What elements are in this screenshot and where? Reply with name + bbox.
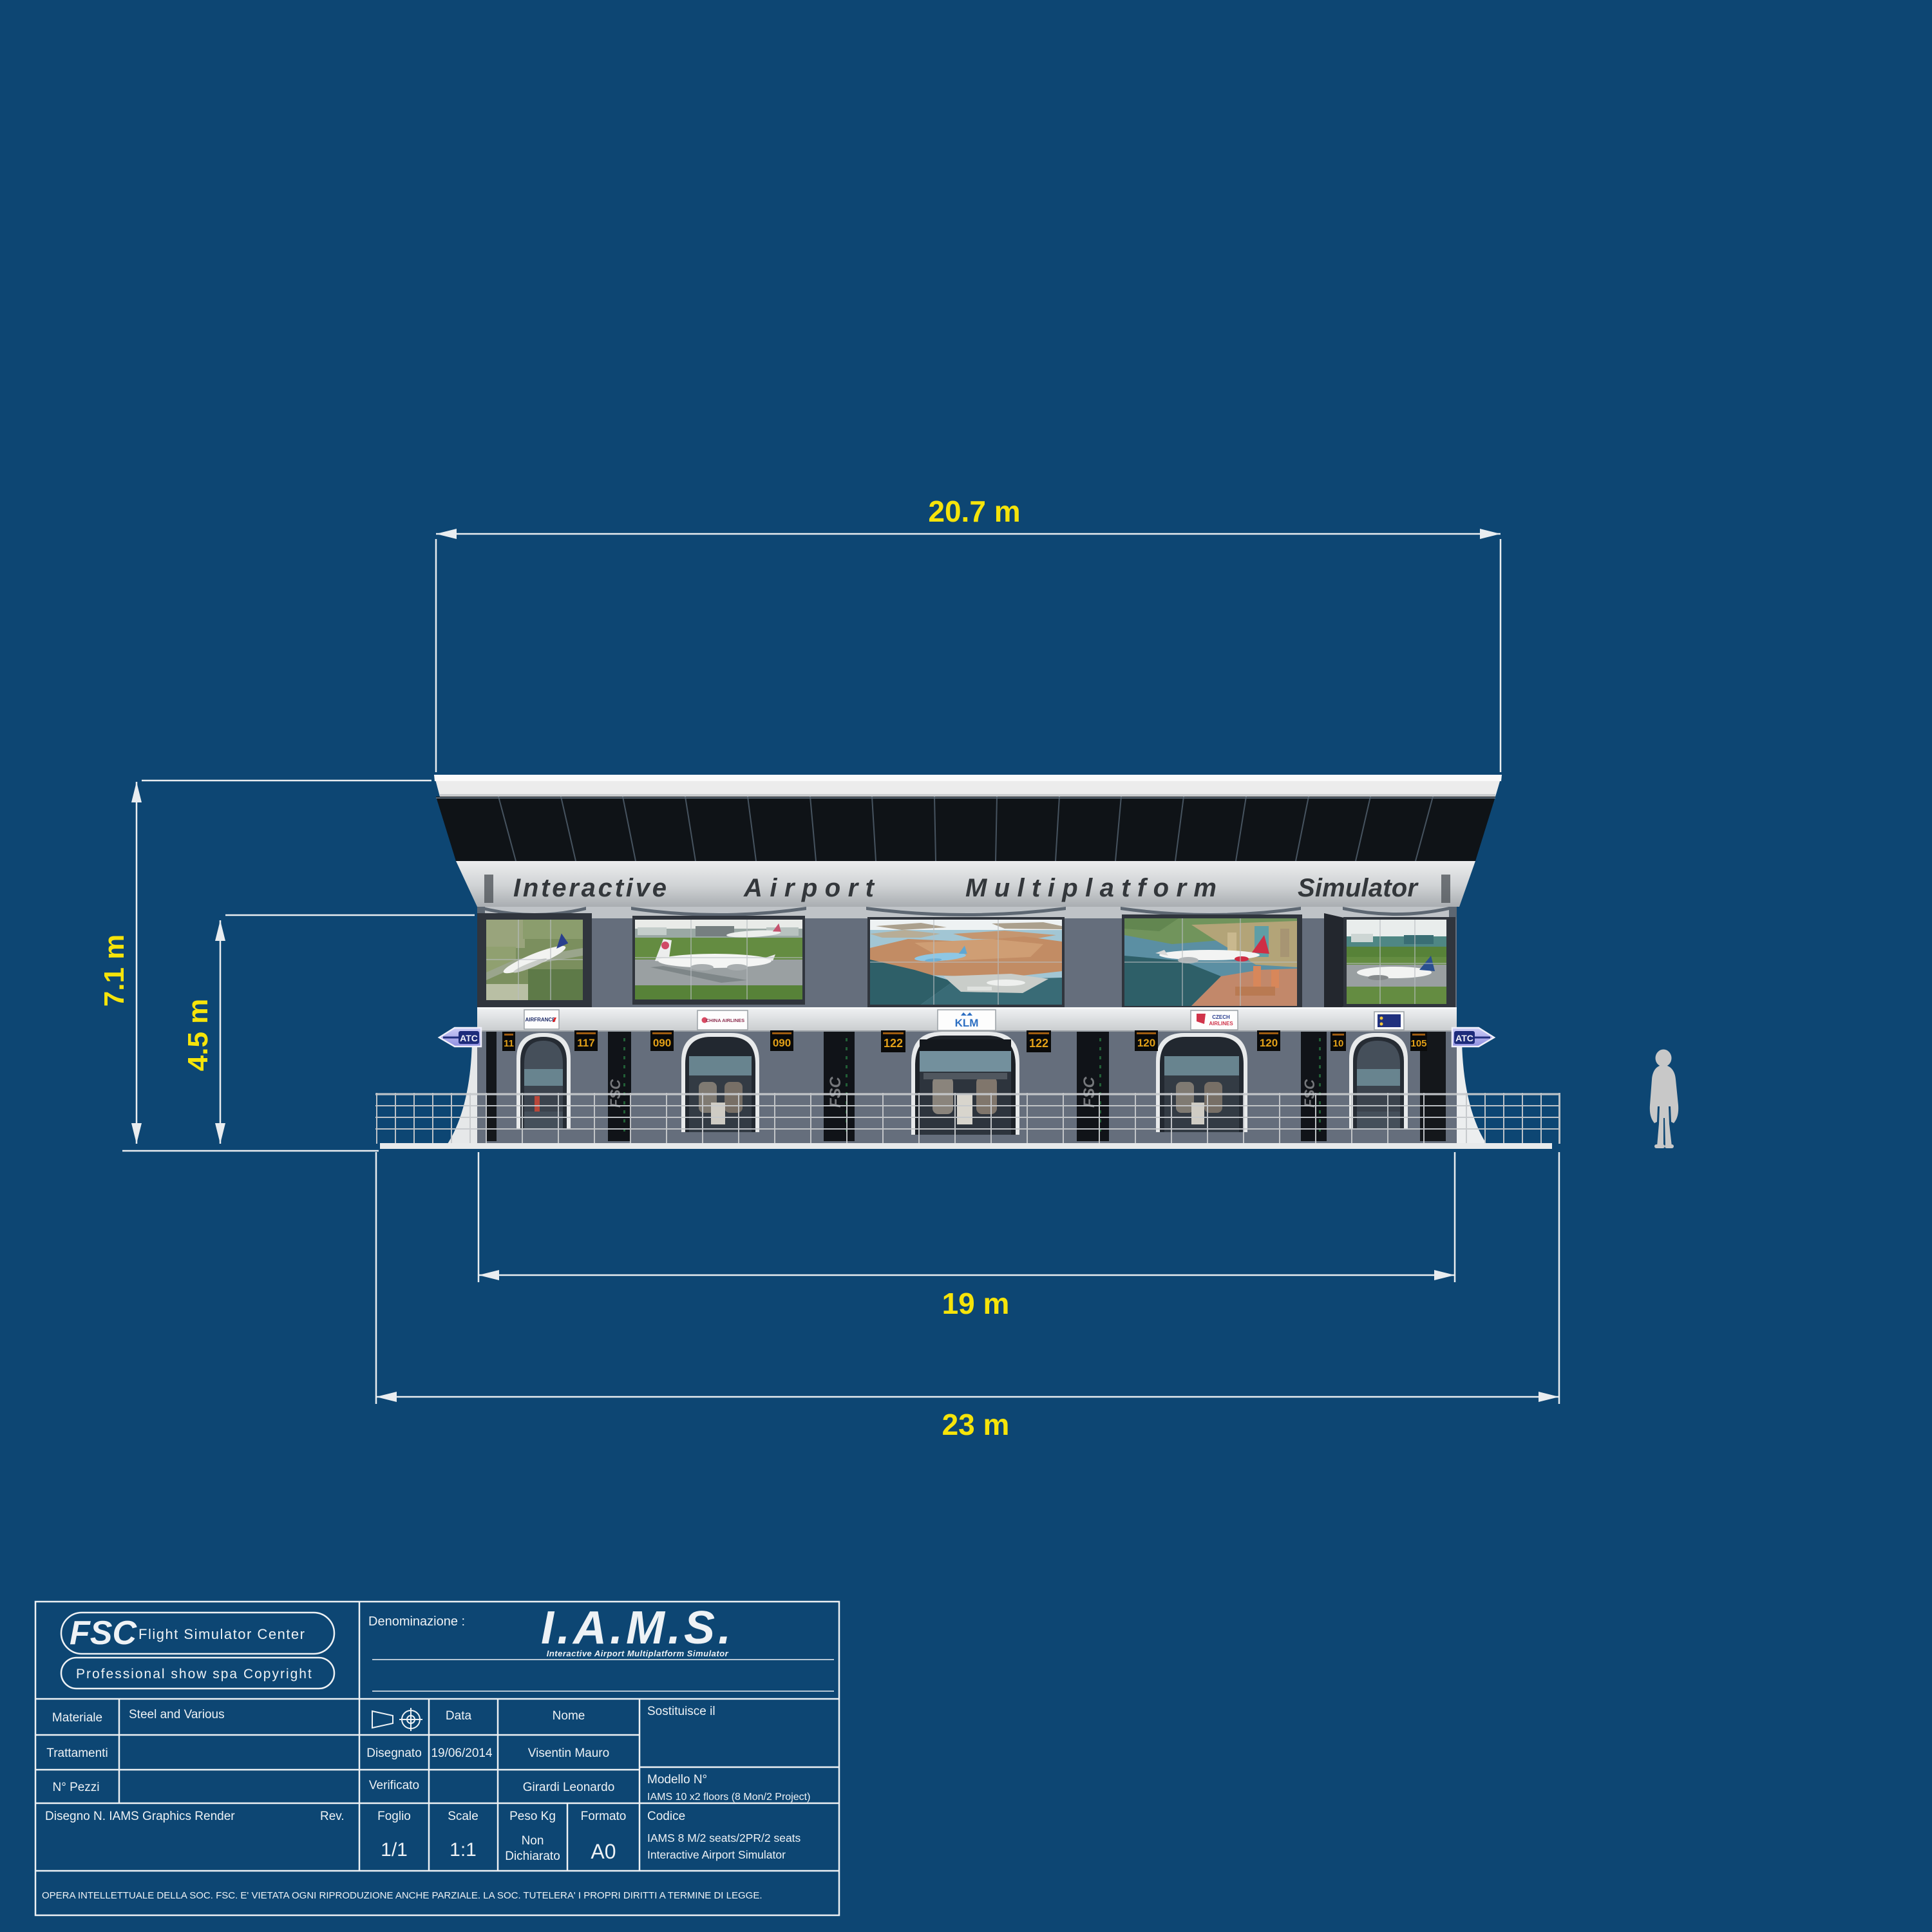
svg-text:Data: Data xyxy=(446,1709,472,1723)
svg-text:20.7 m: 20.7 m xyxy=(928,495,1020,528)
svg-text:Multiplatform: Multiplatform xyxy=(965,874,1217,902)
svg-text:Non: Non xyxy=(522,1834,544,1848)
svg-text:N° Pezzi: N° Pezzi xyxy=(52,1781,99,1794)
svg-text:105: 105 xyxy=(1410,1038,1426,1049)
svg-text:AIRFRANCE: AIRFRANCE xyxy=(525,1017,556,1023)
svg-text:Trattamenti: Trattamenti xyxy=(46,1747,108,1760)
svg-text:FSC: FSC xyxy=(1081,1076,1098,1108)
svg-text:Verificato: Verificato xyxy=(369,1779,419,1792)
svg-text:Scale: Scale xyxy=(448,1810,478,1823)
svg-text:10: 10 xyxy=(1333,1038,1344,1049)
svg-text:Professional show spa Copyrigh: Professional show spa Copyright xyxy=(76,1667,313,1681)
svg-text:Girardi Leonardo: Girardi Leonardo xyxy=(523,1781,615,1794)
svg-text:Codice: Codice xyxy=(647,1810,685,1823)
svg-text:4.5 m: 4.5 m xyxy=(182,999,214,1072)
svg-text:Interactive Airport Multiplatf: Interactive Airport Multiplatform Simula… xyxy=(547,1649,729,1658)
svg-text:OPERA INTELLETTUALE DELLA SOC.: OPERA INTELLETTUALE DELLA SOC. FSC. E' V… xyxy=(42,1890,762,1901)
svg-text:23 m: 23 m xyxy=(942,1408,1010,1441)
svg-text:IAMS 10 x2 floors (8 Mon/2 Pro: IAMS 10 x2 floors (8 Mon/2 Project) xyxy=(647,1792,810,1803)
svg-text:19/06/2014: 19/06/2014 xyxy=(431,1747,493,1760)
svg-text:122: 122 xyxy=(884,1037,903,1050)
svg-text:Interactive: Interactive xyxy=(513,874,667,902)
svg-text:A0: A0 xyxy=(591,1840,616,1863)
svg-text:11: 11 xyxy=(504,1038,514,1049)
svg-text:Dichiarato: Dichiarato xyxy=(505,1850,560,1863)
svg-text:Simulator: Simulator xyxy=(1298,874,1419,902)
svg-text:Foglio: Foglio xyxy=(377,1810,411,1823)
svg-text:Steel and Various: Steel and Various xyxy=(129,1708,225,1721)
svg-text:090: 090 xyxy=(653,1037,671,1049)
svg-text:CHINA AIRLINES: CHINA AIRLINES xyxy=(706,1018,744,1023)
svg-text:117: 117 xyxy=(577,1037,594,1049)
svg-text:Visentin Mauro: Visentin Mauro xyxy=(528,1747,609,1760)
svg-text:Disegnato: Disegnato xyxy=(366,1747,422,1760)
svg-text:Denominazione :: Denominazione : xyxy=(368,1615,465,1629)
svg-text:Interactive Airport Simulator: Interactive Airport Simulator xyxy=(647,1848,786,1861)
svg-text:Materiale: Materiale xyxy=(52,1711,102,1725)
svg-text:1/1: 1/1 xyxy=(381,1839,408,1861)
svg-text:7.1 m: 7.1 m xyxy=(99,934,130,1007)
svg-text:Disegno N. IAMS Graphics Rende: Disegno N. IAMS Graphics Render xyxy=(45,1810,235,1823)
svg-text:IAMS 8 M/2 seats/2PR/2 seats: IAMS 8 M/2 seats/2PR/2 seats xyxy=(647,1832,801,1844)
svg-text:ATC: ATC xyxy=(1455,1033,1473,1043)
svg-text:I.A.M.S.: I.A.M.S. xyxy=(541,1602,734,1654)
svg-text:FSC: FSC xyxy=(827,1076,844,1108)
svg-text:Nome: Nome xyxy=(553,1709,585,1723)
svg-text:Formato: Formato xyxy=(581,1810,627,1823)
svg-text:122: 122 xyxy=(1029,1037,1048,1050)
svg-text:FSC: FSC xyxy=(70,1615,137,1652)
svg-text:AIRLINES: AIRLINES xyxy=(1209,1021,1233,1027)
svg-text:090: 090 xyxy=(773,1037,791,1049)
svg-text:Flight Simulator Center: Flight Simulator Center xyxy=(138,1626,305,1642)
svg-text:Sostituisce il: Sostituisce il xyxy=(647,1705,715,1718)
svg-text:CZECH: CZECH xyxy=(1212,1014,1230,1020)
svg-text:120: 120 xyxy=(1137,1037,1155,1049)
svg-text:1:1: 1:1 xyxy=(450,1839,477,1861)
svg-text:120: 120 xyxy=(1260,1037,1278,1049)
svg-text:KLM: KLM xyxy=(955,1017,979,1029)
svg-text:Peso Kg: Peso Kg xyxy=(509,1810,556,1823)
svg-text:Modello N°: Modello N° xyxy=(647,1773,707,1786)
svg-text:ATC: ATC xyxy=(460,1033,478,1043)
svg-text:19 m: 19 m xyxy=(942,1287,1010,1320)
svg-text:Rev.: Rev. xyxy=(320,1810,345,1823)
